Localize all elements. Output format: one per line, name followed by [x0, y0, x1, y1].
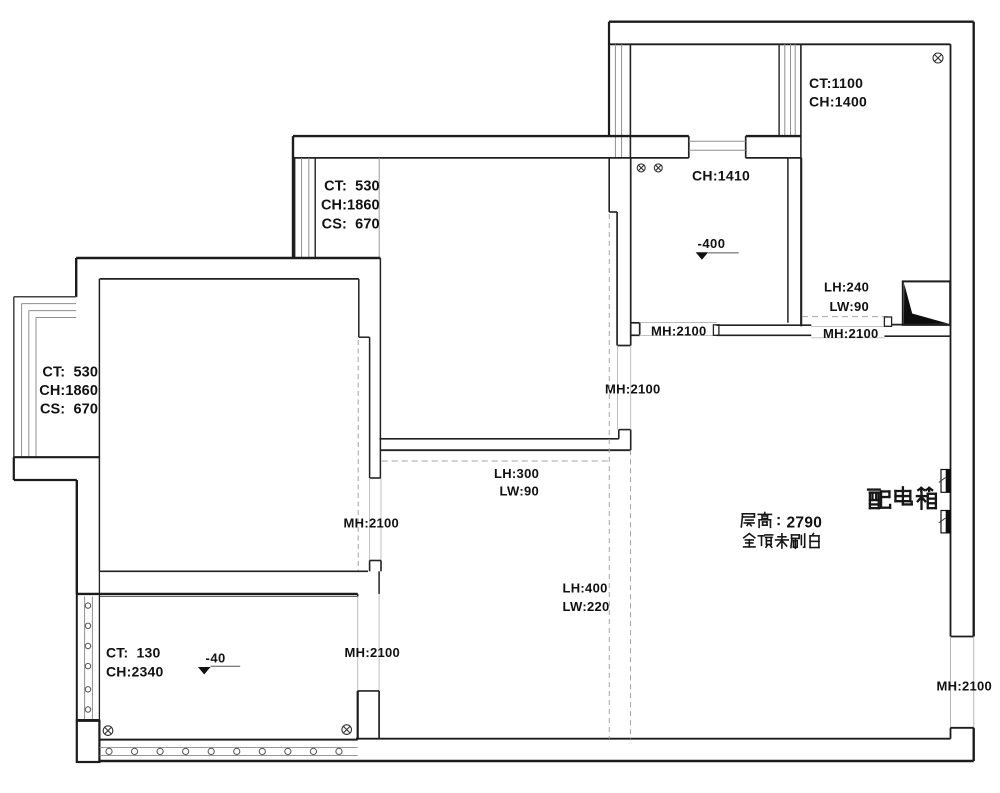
svg-text:CH:2340: CH:2340: [106, 664, 163, 680]
svg-text:CH:1400: CH:1400: [809, 94, 867, 110]
svg-text:-400: -400: [698, 236, 726, 251]
svg-text:2790: 2790: [787, 515, 823, 532]
svg-text:MH:2100: MH:2100: [823, 326, 879, 341]
svg-text:CT: 530: CT: 530: [324, 179, 380, 195]
svg-text:-40: -40: [206, 651, 226, 666]
svg-text:MH:2100: MH:2100: [344, 516, 400, 531]
svg-text:LH:400: LH:400: [563, 581, 608, 596]
svg-text:CT:1100: CT:1100: [809, 75, 863, 91]
svg-text:MH:2100: MH:2100: [937, 679, 993, 694]
svg-text:LH:300: LH:300: [494, 466, 539, 481]
svg-text:CH:1410: CH:1410: [692, 168, 750, 184]
svg-text:LW:220: LW:220: [563, 599, 610, 614]
svg-text:CH:1860: CH:1860: [39, 383, 98, 399]
svg-text:CS: 670: CS: 670: [322, 216, 380, 232]
svg-text:CH:1860: CH:1860: [321, 198, 380, 214]
svg-text:MH:2100: MH:2100: [605, 382, 661, 397]
svg-text:LW:90: LW:90: [830, 299, 870, 314]
svg-text:CT: 530: CT: 530: [42, 365, 98, 381]
svg-text:MH:2100: MH:2100: [651, 324, 707, 339]
svg-text:LH:240: LH:240: [824, 280, 869, 295]
svg-text:MH:2100: MH:2100: [345, 645, 401, 660]
svg-text:CT: 130: CT: 130: [106, 645, 161, 661]
svg-text:CS: 670: CS: 670: [40, 402, 98, 418]
svg-text:LW:90: LW:90: [500, 484, 540, 499]
